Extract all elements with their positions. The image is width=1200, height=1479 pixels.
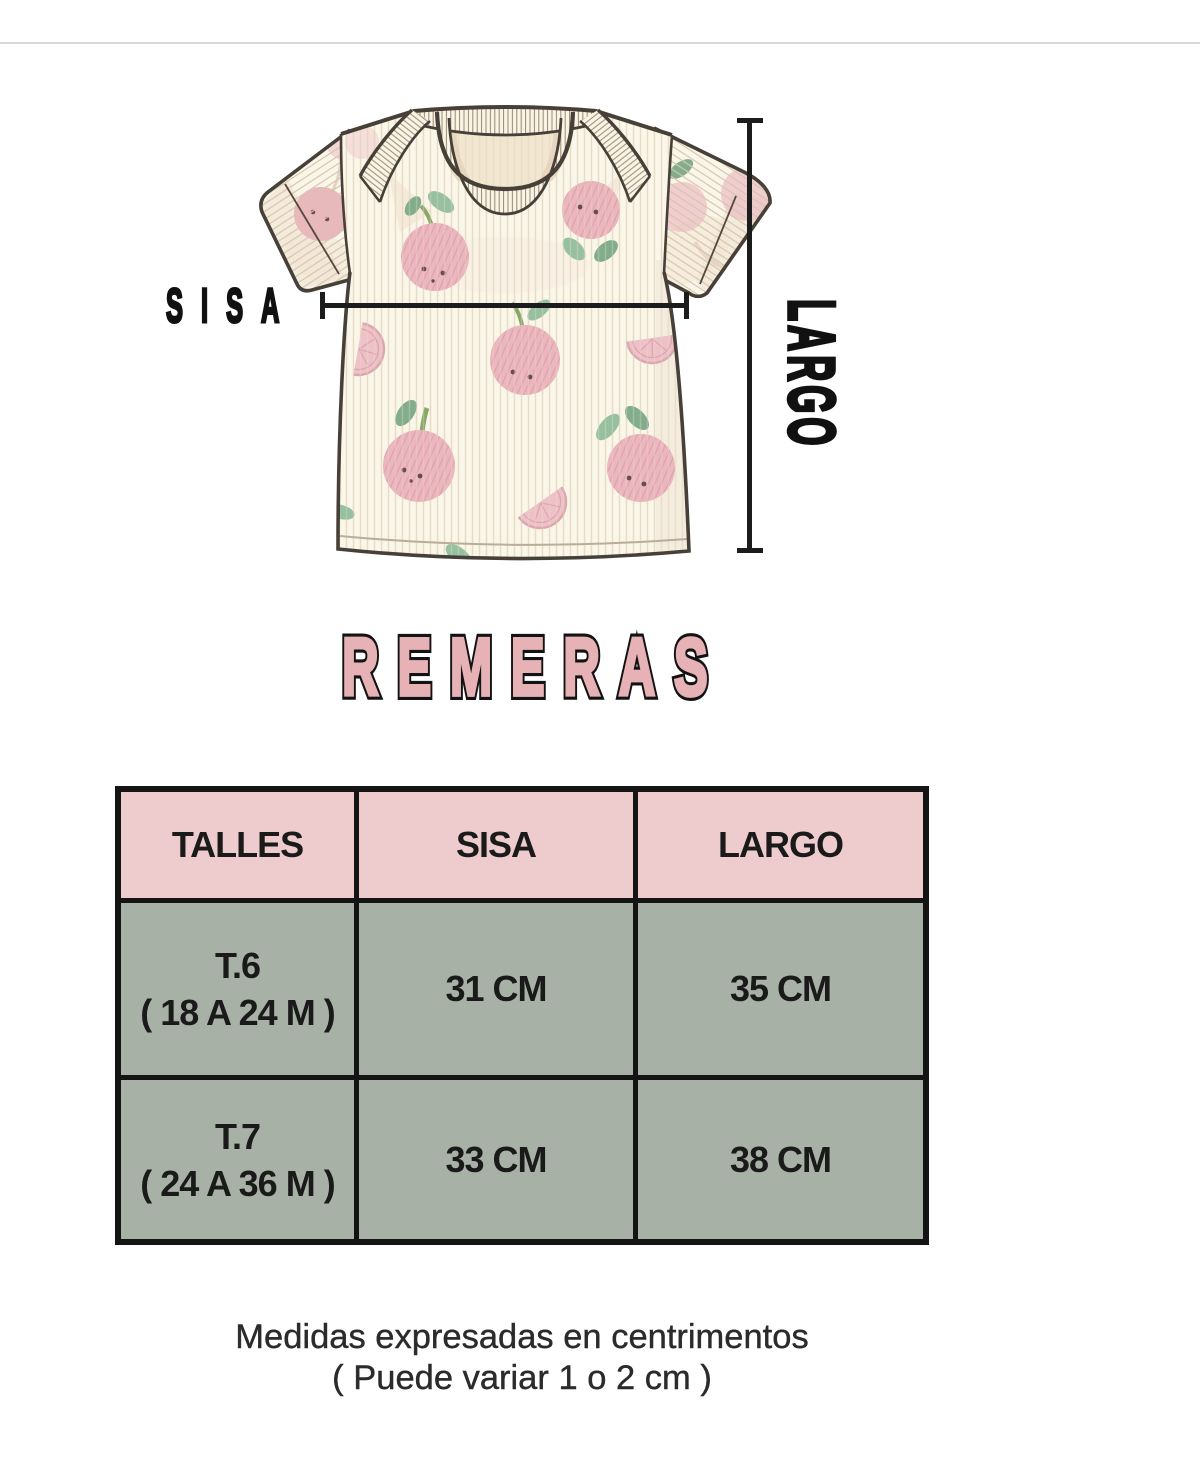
svg-text:LARGO: LARGO (774, 299, 847, 449)
svg-text:SISA: SISA (166, 280, 297, 334)
svg-text:REMERAS: REMERAS (342, 622, 726, 713)
